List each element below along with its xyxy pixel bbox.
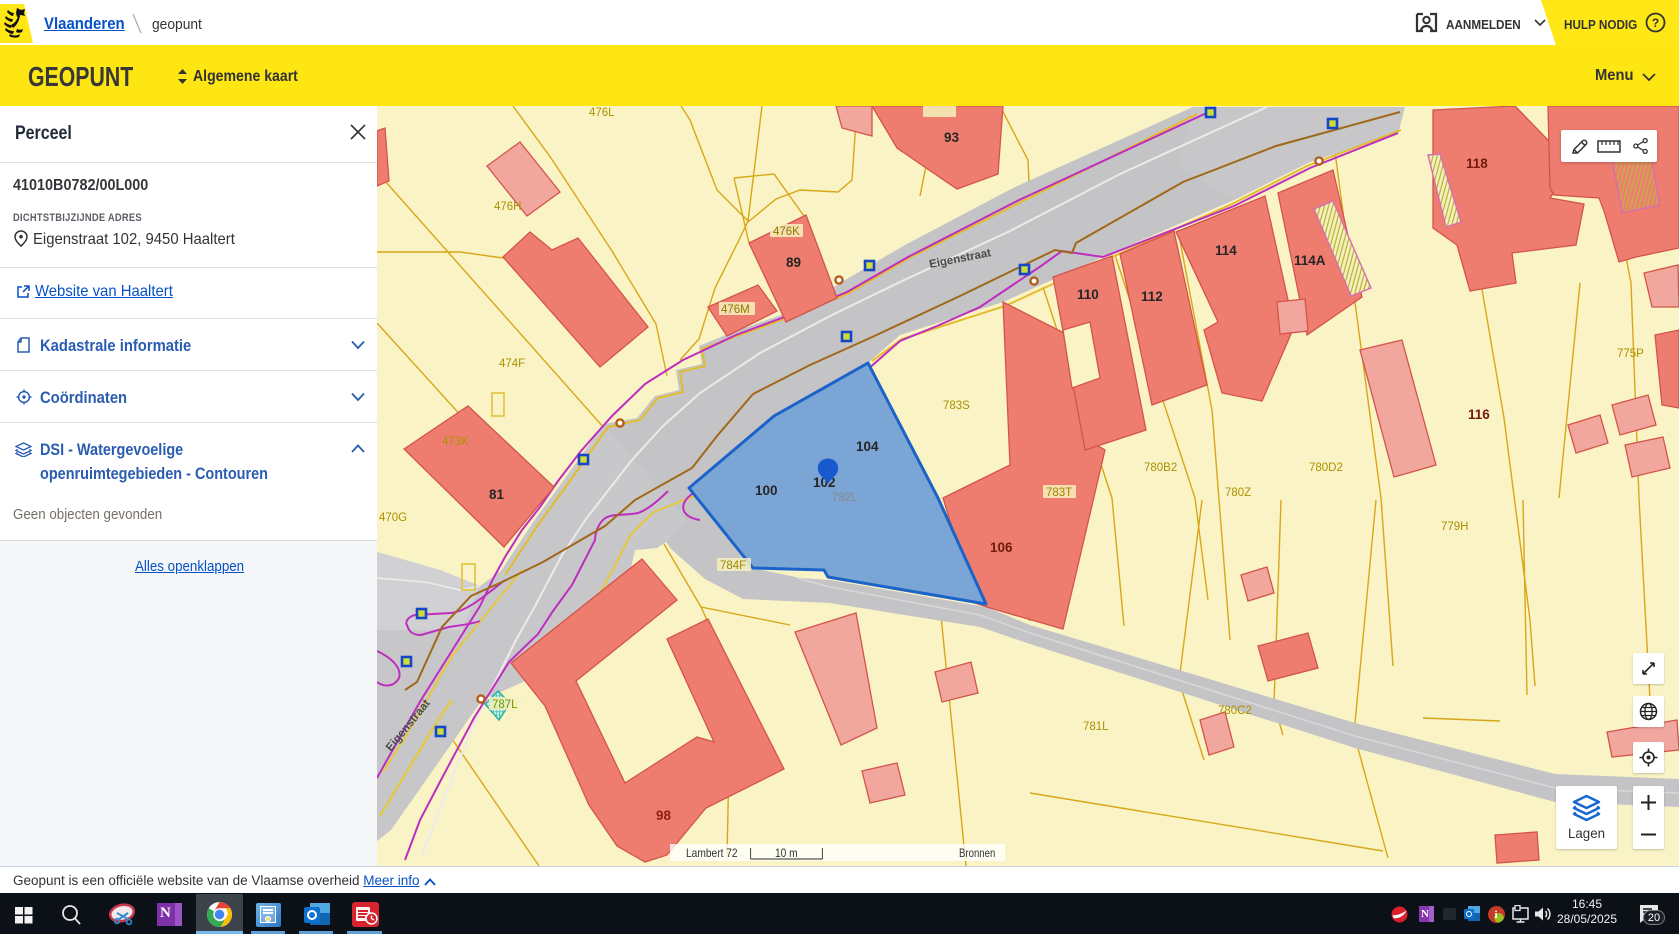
svg-text:781L: 781L xyxy=(1083,721,1109,733)
svg-text:780D2: 780D2 xyxy=(1309,462,1343,474)
svg-text:104: 104 xyxy=(856,439,879,454)
svg-text:780Z: 780Z xyxy=(1225,487,1251,499)
svg-text:470G: 470G xyxy=(379,512,407,524)
svg-text:93: 93 xyxy=(944,130,960,145)
svg-text:780B2: 780B2 xyxy=(1144,462,1177,474)
svg-text:783T: 783T xyxy=(1046,487,1072,499)
svg-text:100: 100 xyxy=(755,483,778,498)
svg-text:98: 98 xyxy=(656,808,672,823)
svg-text:?: ? xyxy=(1652,16,1659,30)
svg-text:476H: 476H xyxy=(494,201,522,213)
svg-text:783S: 783S xyxy=(943,400,970,412)
svg-text:780C2: 780C2 xyxy=(1218,705,1252,717)
svg-text:106: 106 xyxy=(990,540,1013,555)
svg-text:473K: 473K xyxy=(442,436,469,448)
svg-text:782L: 782L xyxy=(832,492,858,504)
svg-text:474F: 474F xyxy=(499,358,525,370)
svg-text:116: 116 xyxy=(1468,407,1490,422)
svg-text:114A: 114A xyxy=(1294,253,1326,268)
svg-text:476M: 476M xyxy=(721,304,750,316)
svg-text:787L: 787L xyxy=(492,699,518,711)
svg-text:114: 114 xyxy=(1215,243,1237,258)
svg-text:112: 112 xyxy=(1141,289,1163,304)
svg-text:779H: 779H xyxy=(1441,521,1469,533)
svg-text:110: 110 xyxy=(1077,287,1099,302)
svg-text:775P: 775P xyxy=(1617,348,1644,360)
svg-text:476L: 476L xyxy=(589,107,615,119)
svg-text:476K: 476K xyxy=(773,226,800,238)
svg-text:118: 118 xyxy=(1466,156,1488,171)
svg-text:81: 81 xyxy=(489,487,505,502)
svg-text:784F: 784F xyxy=(720,560,746,572)
svg-text:89: 89 xyxy=(786,255,801,270)
